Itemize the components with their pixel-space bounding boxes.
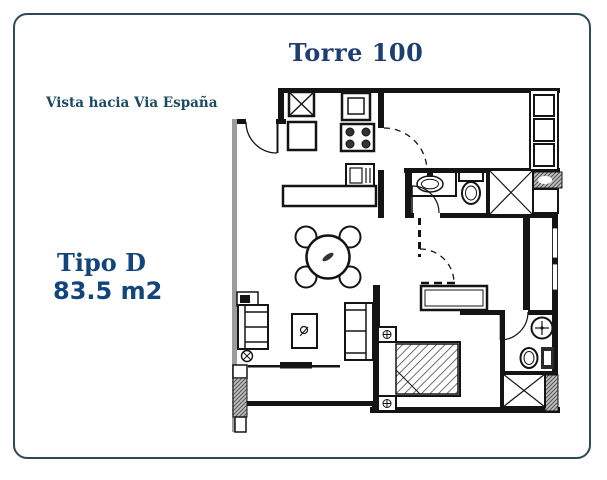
kitchen-sink	[346, 164, 374, 187]
stove	[341, 124, 374, 151]
media-console	[248, 362, 340, 369]
oven	[342, 93, 370, 120]
hall-dresser	[421, 286, 487, 310]
coffee-table	[292, 314, 317, 348]
sofa	[238, 305, 268, 349]
tv-unit	[237, 292, 258, 306]
bedroom1-closet	[530, 90, 558, 170]
bathroom2-sink	[532, 318, 553, 339]
dining-set	[296, 227, 361, 288]
bathroom1-vanity	[411, 172, 456, 196]
nightstand	[378, 327, 396, 342]
bathroom1-toilet	[459, 172, 483, 204]
loveseat	[345, 303, 373, 360]
floorplan-page: Torre 100 Vista hacia Via España Tipo D …	[0, 0, 607, 480]
bedroom1-door-arc-dashed	[384, 128, 427, 171]
bathroom2-toilet	[521, 347, 555, 369]
nightstand	[378, 396, 396, 411]
entry-door	[246, 122, 278, 153]
plant-pot	[242, 351, 253, 362]
bedroom2-door-arc-dashed	[420, 249, 454, 283]
hall	[420, 218, 488, 310]
floor-plan-drawing	[0, 0, 607, 480]
kitchen	[283, 92, 376, 206]
kitchen-counter	[283, 186, 376, 206]
bed	[378, 342, 460, 396]
bathroom1-shower	[489, 170, 533, 215]
living-room	[237, 292, 373, 369]
utility-box	[289, 92, 314, 116]
bathroom2-shower	[503, 374, 545, 407]
bedroom2	[378, 327, 460, 411]
refrigerator	[288, 122, 316, 150]
